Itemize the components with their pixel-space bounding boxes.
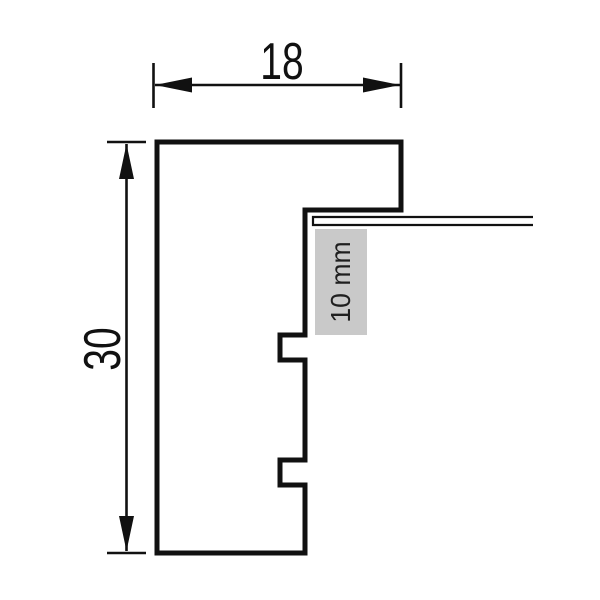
profile-drawing: 10 mm 18 30	[0, 0, 600, 600]
rabbet-depth-label: 10 mm	[324, 241, 356, 322]
height-dimension-label: 30	[72, 327, 131, 370]
profile-outline	[157, 142, 401, 553]
drawing-canvas: 10 mm 18 30	[0, 0, 600, 600]
glass-panel-line	[313, 217, 533, 225]
width-dimension-label: 18	[260, 31, 303, 90]
